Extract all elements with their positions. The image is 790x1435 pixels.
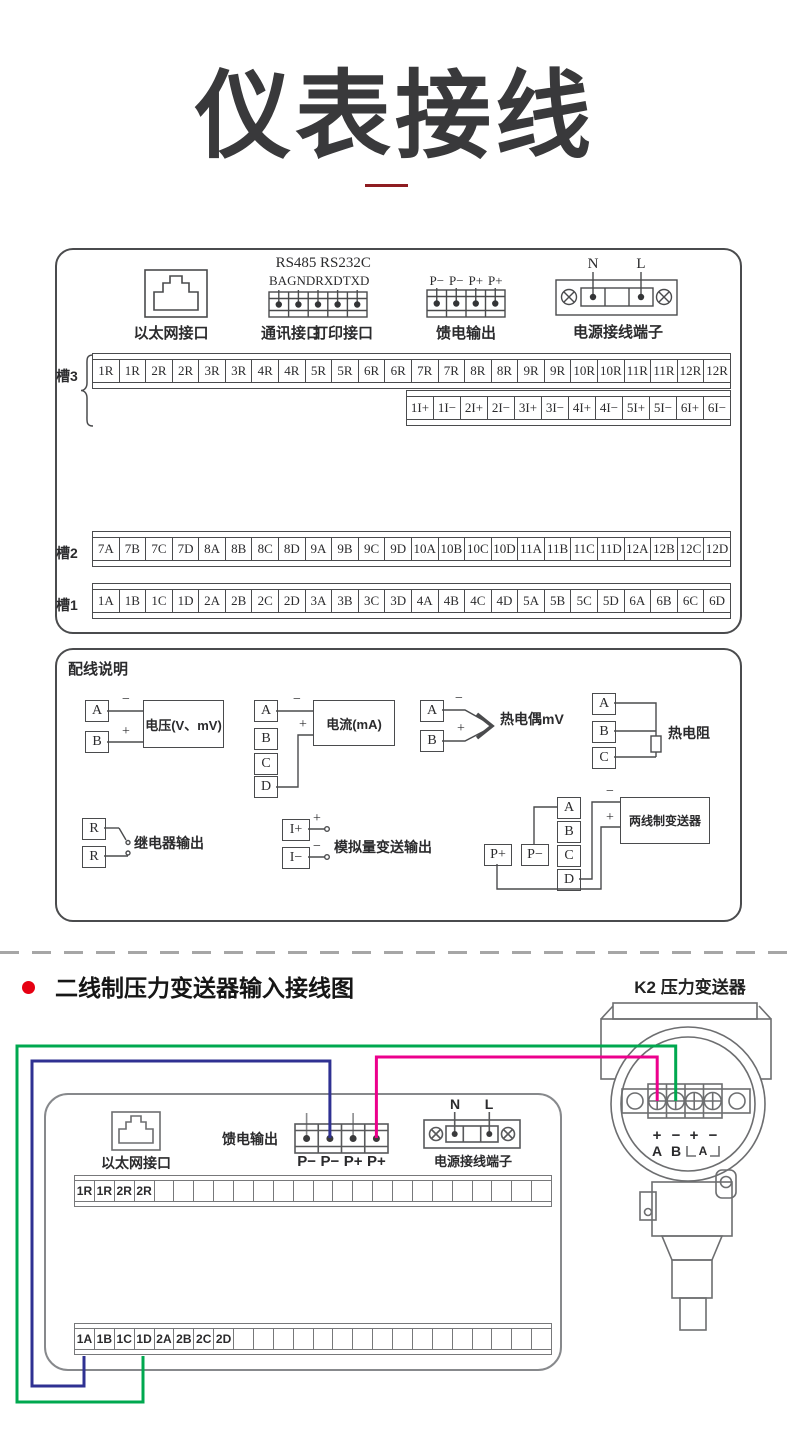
thermocouple-minus-sign: −	[455, 691, 463, 707]
terminal-cell: 2R	[115, 1181, 135, 1201]
terminal-cell: 1I+	[407, 397, 434, 419]
neutral-label-bottom: N	[447, 1096, 463, 1112]
print-port-label: 打印接口	[312, 322, 374, 343]
slot1-strip: 1A1B1C1D2A2B2C2D3A3B3C3D4A4B4C4D5A5B5C5D…	[92, 583, 731, 619]
terminal-cell: 5C	[571, 590, 598, 612]
terminal-cell: GND	[287, 273, 315, 288]
terminal-cell: 3I−	[542, 397, 569, 419]
terminal-cell: 11R	[625, 360, 652, 382]
terminal-cell: 1R	[120, 360, 147, 382]
terminal-cell: 10A	[412, 538, 439, 560]
terminal-cell: P+	[486, 273, 506, 288]
terminal-cell: TXD	[343, 273, 370, 288]
power-terminal-label: 电源接线端子	[572, 321, 664, 342]
section2-title: 二线制压力变送器输入接线图	[55, 969, 354, 1003]
analog-terminal-iplus: I+	[282, 819, 310, 841]
thermocouple-terminal-a: A	[420, 700, 444, 722]
terminal-cell: 6I+	[677, 397, 704, 419]
ethernet-label: 以太网接口	[120, 322, 222, 343]
terminal-cell: 6D	[704, 590, 730, 612]
terminal-cell	[274, 1329, 294, 1349]
terminal-cell	[353, 1181, 373, 1201]
terminal-cell	[333, 1181, 353, 1201]
terminal-cell: 9C	[359, 538, 386, 560]
twowire-minus-sign: −	[606, 784, 614, 800]
terminal-cell: 10C	[465, 538, 492, 560]
twowire-terminal-c: C	[557, 845, 581, 867]
terminal-cell: P−	[318, 1153, 341, 1171]
twowire-terminal-d: D	[557, 869, 581, 891]
comm-pin-labels: BAGNDRXDTXD	[269, 273, 367, 288]
terminal-cell: 1C	[115, 1329, 135, 1349]
slot2-strip: 7A7B7C7D8A8B8C8D9A9B9C9D10A10B10C10D11A1…	[92, 531, 731, 567]
power-terminal-label-bottom: 电源接线端子	[426, 1151, 520, 1170]
terminal-cell	[254, 1329, 274, 1349]
terminal-cell	[413, 1329, 433, 1349]
terminal-cell: 1R	[95, 1181, 115, 1201]
terminal-cell: 11D	[598, 538, 625, 560]
terminal-cell: 2D	[279, 590, 306, 612]
terminal-cell: 2R	[135, 1181, 155, 1201]
terminal-cell: 12R	[704, 360, 730, 382]
ethernet-label-bottom: 以太网接口	[86, 1153, 186, 1173]
current-terminal-c: C	[254, 753, 278, 775]
terminal-cell: 10D	[492, 538, 519, 560]
terminal-cell	[433, 1181, 453, 1201]
terminal-cell	[294, 1329, 314, 1349]
neutral-label: N	[585, 256, 601, 273]
thermocouple-plus-sign: +	[457, 721, 465, 737]
twowire-terminal-a: A	[557, 797, 581, 819]
terminal-cell	[473, 1329, 493, 1349]
svg-text:B: B	[671, 1143, 681, 1159]
terminal-cell: 2I−	[488, 397, 515, 419]
feed-output-label: 馈电输出	[435, 322, 497, 343]
terminal-cell: 8R	[465, 360, 492, 382]
terminal-cell: 2R	[146, 360, 173, 382]
terminal-cell: 1D	[135, 1329, 155, 1349]
feed-output-label-bottom: 馈电输出	[222, 1129, 278, 1149]
terminal-cell	[453, 1329, 473, 1349]
terminal-cell: 8A	[199, 538, 226, 560]
terminal-cell	[314, 1329, 334, 1349]
voltage-terminal-a: A	[85, 700, 109, 722]
terminal-cell: 6R	[359, 360, 386, 382]
svg-text:A: A	[699, 1144, 708, 1158]
rtd-terminal-c: C	[592, 747, 616, 769]
terminal-cell: 11B	[545, 538, 572, 560]
transmitter-terminal-labels: + − + − A B A	[652, 1127, 718, 1159]
bullet-icon	[22, 981, 35, 994]
pressure-transmitter	[601, 1003, 771, 1330]
terminal-cell: 4C	[465, 590, 492, 612]
terminal-cell	[254, 1181, 274, 1201]
slot3-relay-strip: 1R1R2R2R3R3R4R4R5R5R6R6R7R7R8R8R9R9R10R1…	[92, 353, 731, 389]
terminal-cell	[373, 1329, 393, 1349]
terminal-cell: 5R	[306, 360, 333, 382]
terminal-cell: P−	[295, 1153, 318, 1171]
terminal-cell: 2B	[226, 590, 253, 612]
terminal-cell	[294, 1181, 314, 1201]
terminal-cell: 9A	[306, 538, 333, 560]
terminal-cell: B	[269, 273, 278, 288]
voltage-plus-sign: +	[122, 724, 130, 740]
page: 仪表接线 以太网接口 RS485 RS232C BAGNDRXDTXD 通讯接口…	[0, 0, 790, 1435]
svg-text:+: +	[653, 1127, 662, 1144]
feed-pin-labels: P−P−P+P+	[427, 273, 505, 288]
analog-plus-sign: +	[313, 811, 321, 827]
svg-text:A: A	[652, 1143, 662, 1159]
terminal-cell: 4D	[492, 590, 519, 612]
terminal-cell: 1I−	[434, 397, 461, 419]
terminal-cell: 3R	[226, 360, 253, 382]
terminal-cell: 1B	[95, 1329, 115, 1349]
terminal-cell: 1D	[173, 590, 200, 612]
terminal-cell: 7R	[439, 360, 466, 382]
terminal-cell: 7R	[412, 360, 439, 382]
terminal-cell: 9D	[385, 538, 412, 560]
terminal-cell	[492, 1181, 512, 1201]
current-minus-sign: −	[293, 692, 301, 708]
terminal-cell: 9B	[332, 538, 359, 560]
terminal-cell: 4I+	[569, 397, 596, 419]
title-underline	[365, 184, 408, 187]
terminal-cell	[174, 1181, 194, 1201]
terminal-cell: 12C	[678, 538, 705, 560]
terminal-cell	[512, 1181, 532, 1201]
terminal-cell: 2I+	[461, 397, 488, 419]
current-device-box: 电流(mA)	[313, 700, 395, 746]
line-label: L	[633, 256, 649, 273]
svg-text:−: −	[672, 1127, 681, 1144]
slot3-current-strip: 1I+1I−2I+2I−3I+3I−4I+4I−5I+5I−6I+6I−	[406, 390, 731, 426]
terminal-cell: 11C	[571, 538, 598, 560]
terminal-cell	[274, 1181, 294, 1201]
transmitter-title: K2 压力变送器	[600, 973, 780, 998]
terminal-cell	[314, 1181, 334, 1201]
terminal-cell: 2A	[199, 590, 226, 612]
terminal-cell: 4R	[252, 360, 279, 382]
rtd-terminal-b: B	[592, 721, 616, 743]
voltage-terminal-b: B	[85, 731, 109, 753]
terminal-cell: 5A	[518, 590, 545, 612]
wiring-panel-title: 配线说明	[68, 658, 128, 679]
current-terminal-d: D	[254, 776, 278, 798]
thermocouple-terminal-b: B	[420, 730, 444, 752]
slot1-label: 槽1	[56, 595, 78, 615]
terminal-cell: 1R	[93, 360, 120, 382]
line-label-bottom: L	[481, 1096, 497, 1112]
terminal-cell: 10B	[439, 538, 466, 560]
bottom-relay-strip: 1R1R2R2R	[74, 1175, 552, 1207]
terminal-cell: 3I+	[515, 397, 542, 419]
terminal-cell: 6I−	[704, 397, 730, 419]
current-terminal-b: B	[254, 728, 278, 750]
feed-pin-labels-bottom: P−P−P+P+	[295, 1153, 388, 1171]
terminal-cell: 3D	[385, 590, 412, 612]
terminal-cell: 9R	[545, 360, 572, 382]
current-terminal-a: A	[254, 700, 278, 722]
terminal-cell	[532, 1181, 551, 1201]
terminal-cell: 12D	[704, 538, 730, 560]
relay-terminal-r2: R	[82, 846, 106, 868]
terminal-cell: 2D	[214, 1329, 234, 1349]
rs485-label: RS485	[271, 255, 321, 272]
terminal-cell: 4A	[412, 590, 439, 612]
terminal-cell	[433, 1329, 453, 1349]
terminal-cell: 7C	[146, 538, 173, 560]
terminal-cell: P+	[466, 273, 486, 288]
terminal-cell: 7A	[93, 538, 120, 560]
rtd-label: 热电阻	[668, 723, 710, 743]
terminal-cell: RXD	[315, 273, 342, 288]
svg-text:+: +	[690, 1127, 699, 1144]
bottom-input-strip: 1A1B1C1D2A2B2C2D	[74, 1323, 552, 1355]
page-title: 仪表接线	[0, 38, 790, 177]
terminal-cell	[353, 1329, 373, 1349]
terminal-cell: 4I−	[596, 397, 623, 419]
terminal-cell: 12A	[625, 538, 652, 560]
terminal-cell: 3B	[332, 590, 359, 612]
twowire-terminal-pplus: P+	[484, 844, 512, 866]
terminal-cell	[214, 1181, 234, 1201]
terminal-cell: 3A	[306, 590, 333, 612]
main-terminal-panel	[55, 248, 742, 634]
rtd-terminal-a: A	[592, 693, 616, 715]
terminal-cell: 6R	[385, 360, 412, 382]
slot2-label: 槽2	[56, 543, 78, 563]
terminal-cell: 5D	[598, 590, 625, 612]
relay-label: 继电器输出	[134, 833, 204, 853]
twowire-terminal-pminus: P−	[521, 844, 549, 866]
slot3-label: 槽3	[56, 366, 78, 386]
terminal-cell	[234, 1329, 254, 1349]
analog-output-label: 模拟量变送输出	[334, 837, 432, 857]
twowire-terminal-b: B	[557, 821, 581, 843]
terminal-cell	[413, 1181, 433, 1201]
terminal-cell: 8R	[492, 360, 519, 382]
terminal-cell: 1R	[75, 1181, 95, 1201]
terminal-cell: 8C	[252, 538, 279, 560]
terminal-cell: 11R	[651, 360, 678, 382]
analog-terminal-iminus: I−	[282, 847, 310, 869]
terminal-cell	[373, 1181, 393, 1201]
analog-minus-sign: −	[313, 839, 321, 855]
terminal-cell	[393, 1181, 413, 1201]
terminal-cell	[194, 1181, 214, 1201]
terminal-cell: 5I−	[650, 397, 677, 419]
thermocouple-label: 热电偶mV	[500, 709, 564, 729]
terminal-cell: 12R	[678, 360, 705, 382]
voltage-minus-sign: −	[122, 692, 130, 708]
terminal-cell: 6A	[625, 590, 652, 612]
terminal-cell	[453, 1181, 473, 1201]
terminal-cell: 1A	[75, 1329, 95, 1349]
terminal-cell: 3R	[199, 360, 226, 382]
voltage-device-box: 电压(V、mV)	[143, 700, 224, 748]
terminal-cell: 5B	[545, 590, 572, 612]
terminal-cell: A	[278, 273, 287, 288]
terminal-cell: 7D	[173, 538, 200, 560]
terminal-cell: 5R	[332, 360, 359, 382]
dashed-separator	[0, 951, 790, 954]
terminal-cell: 3C	[359, 590, 386, 612]
terminal-cell	[473, 1181, 493, 1201]
terminal-cell: 2R	[173, 360, 200, 382]
terminal-cell: P−	[427, 273, 447, 288]
wiring-explanation-panel	[55, 648, 742, 922]
terminal-cell	[234, 1181, 254, 1201]
terminal-cell: 8D	[279, 538, 306, 560]
terminal-cell	[492, 1329, 512, 1349]
terminal-cell: 2B	[174, 1329, 194, 1349]
terminal-cell: 6C	[678, 590, 705, 612]
terminal-cell: 9R	[518, 360, 545, 382]
terminal-cell	[333, 1329, 353, 1349]
terminal-cell: 4R	[279, 360, 306, 382]
terminal-cell	[393, 1329, 413, 1349]
terminal-cell	[532, 1329, 551, 1349]
terminal-cell: 2A	[155, 1329, 175, 1349]
current-plus-sign: +	[299, 717, 307, 733]
terminal-cell: 4B	[439, 590, 466, 612]
terminal-cell: 7B	[120, 538, 147, 560]
terminal-cell: 10R	[598, 360, 625, 382]
terminal-cell: 1B	[120, 590, 147, 612]
terminal-cell	[155, 1181, 175, 1201]
twowire-device-box: 两线制变送器	[620, 797, 710, 844]
terminal-cell: 2C	[252, 590, 279, 612]
terminal-cell: 1C	[146, 590, 173, 612]
terminal-cell: P+	[342, 1153, 365, 1171]
terminal-cell: P+	[365, 1153, 388, 1171]
svg-text:−: −	[709, 1127, 718, 1144]
terminal-cell	[512, 1329, 532, 1349]
terminal-cell: P−	[447, 273, 467, 288]
terminal-cell: 5I+	[623, 397, 650, 419]
terminal-cell: 8B	[226, 538, 253, 560]
terminal-cell: 10R	[571, 360, 598, 382]
terminal-cell: 12B	[651, 538, 678, 560]
terminal-cell: 2C	[194, 1329, 214, 1349]
terminal-cell: 1A	[93, 590, 120, 612]
terminal-cell: 6B	[651, 590, 678, 612]
twowire-plus-sign: +	[606, 810, 614, 826]
terminal-cell: 11A	[518, 538, 545, 560]
relay-terminal-r1: R	[82, 818, 106, 840]
rs232c-label: RS232C	[320, 255, 370, 272]
